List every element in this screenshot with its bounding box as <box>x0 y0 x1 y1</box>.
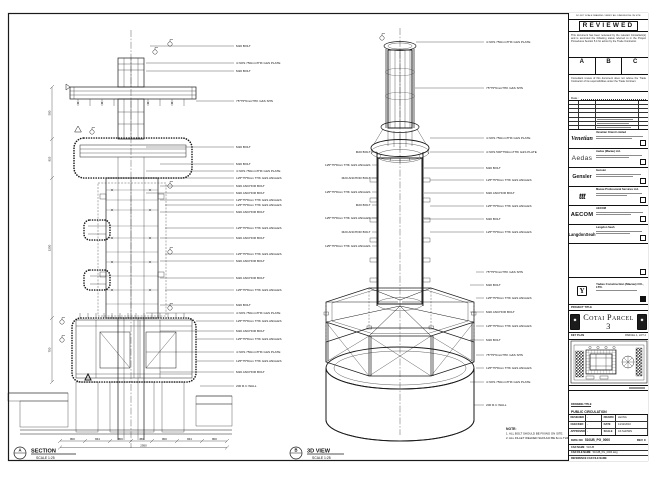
callout-label: M20 BOLT <box>236 44 251 48</box>
approved-label: APPROVED <box>569 429 586 436</box>
approved-value: - <box>586 429 603 436</box>
dim-label: 800 <box>162 437 167 441</box>
callout-label: 4 NOS 750mmTHK G&S PLATE <box>236 311 280 315</box>
section-marker: A <box>18 448 21 453</box>
callout-label: 4 NOS 500*750mmTHK G&S PLATE <box>486 150 537 154</box>
drawing-title-block: DRAWING TITLE PUBLIC CIRCULATION FOUNTAI… <box>569 391 648 415</box>
callout-label: 125*75*8mm THK G&S ANGLES <box>486 324 532 328</box>
key-plan-header: KEY PLAN PARCEL 1, LOT 2 <box>569 333 648 340</box>
company-row-aecom: AECOM AECOM <box>569 206 648 225</box>
title-block: DO NOT SCALE DRAWING. VERIFY ALL DIMENSI… <box>568 13 648 461</box>
callout-label: 4 NOS 750mmTHK G&S PLATE <box>486 380 530 384</box>
dim-label: 800 <box>212 437 217 441</box>
callout-label: 75*75*6mmTHK G&S SHS <box>486 353 523 357</box>
banner-ornament-left-icon <box>570 314 580 330</box>
parcel-tag <box>629 387 645 389</box>
checked-label: CHECKED <box>569 422 586 429</box>
reviewed-stamp-title: REVIEWED <box>579 21 639 31</box>
iso-callouts-right: 4 NOS 750mmTHK G&S PLATE 75*75*6mmTHK G&… <box>486 40 537 407</box>
notes-title: NOTE: <box>506 427 517 431</box>
company-row-venetian: Venetian Venetian Orient Limited <box>569 130 648 149</box>
company-checkbox[interactable] <box>640 269 646 275</box>
banner-ornament-right-icon <box>637 314 647 330</box>
callout-label: 125*75*8mm THK G&S ANGLES <box>236 359 282 363</box>
reviewed-paragraph-1: This document has been reviewed by the r… <box>569 32 648 58</box>
callout-label: M20 ANCHOR BOLT <box>236 276 265 280</box>
ref-cad-file-label: REFERENCE CAD FILE NAME <box>571 457 607 460</box>
scale-value: AS SHOWN <box>616 429 648 436</box>
callout-label: 125*75*8mm THK G&S ANGLES <box>486 204 532 208</box>
title-block-top-strip: DO NOT SCALE DRAWING. VERIFY ALL DIMENSI… <box>569 13 648 20</box>
company-row-aedas: Aedas Aedas (Macau) Ltd. <box>569 149 648 168</box>
grade-b-cell[interactable]: B <box>596 58 623 74</box>
callout-label: 4 NOS 750mmTHK G&S PLATE <box>486 136 530 140</box>
yadao-logo: Y <box>577 286 587 296</box>
cad-name-value: 510UB <box>586 446 594 449</box>
sheet-frame <box>9 14 648 461</box>
section-leaders <box>146 46 234 386</box>
callout-label: 125*75*8mm THK G&S ANGLES <box>325 244 371 248</box>
callout-label: 125*75*8mm THK G&S ANGLES <box>236 226 282 230</box>
callout-label: 125*75*8mm THK G&S ANGLES <box>236 337 282 341</box>
company-name: Macau Professional Services Ltd. <box>596 189 647 192</box>
venetian-logo: Venetian <box>569 130 595 148</box>
callout-label: 75*75*6mmTHK G&S SHS <box>236 99 273 103</box>
callout-label: 75*75*6mmTHK G&S SHS <box>486 86 523 90</box>
iso-left-leaders <box>372 152 377 246</box>
callout-label: 75*75*6mmTHK G&S SHS <box>486 270 523 274</box>
dim-label-v: 750 <box>48 347 52 352</box>
date-fill-line[interactable] <box>581 95 646 100</box>
dim-total: 2950 <box>140 443 147 447</box>
callout-label: M20 ANCHOR BOLT <box>236 236 265 240</box>
callout-label: 125*75*8mm THK G&S ANGLES <box>486 178 532 182</box>
callout-label: 125*75*8mm THK G&S ANGLES <box>325 190 371 194</box>
designed-value: - <box>586 415 603 422</box>
drawing-title-label: DRAWING TITLE <box>571 403 591 407</box>
iso-scale: SCALE 1:25 <box>312 456 331 460</box>
callout-label: M20 ANCHOR BOLT <box>486 191 515 195</box>
reviewed-date-row: Date : <box>569 92 648 101</box>
section-scale: SCALE 1:25 <box>36 456 55 460</box>
company-name: Aedas (Macau) Ltd. <box>596 151 647 154</box>
callout-label: M20 ANCHOR BOLT <box>342 176 371 180</box>
empty-approval-box <box>569 244 648 278</box>
iso-title: B 3D VIEW SCALE 1:25 <box>290 447 344 460</box>
dwg-no-row: DWG NO 510UB_PG_0000 REV C <box>569 436 648 445</box>
callout-label: 125*75*8mm THK G&S ANGLES <box>486 230 532 234</box>
callout-label: 200 R.C WALL <box>486 403 507 407</box>
drawn-label: DRAWN <box>602 415 616 422</box>
project-title: Cotai Parcel 3 <box>580 313 637 331</box>
dim-label: 450 <box>139 437 144 441</box>
company-name: Gensler <box>596 170 647 173</box>
callout-label: 4 NOS 750mmTHK G&S PLATE <box>486 40 530 44</box>
project-title-banner: Cotai Parcel 3 <box>569 311 648 333</box>
notes-block: NOTE: 1. ALL BOLT SHOULD BE FIXING ON SI… <box>506 427 570 440</box>
revision-row <box>569 126 648 129</box>
callout-label: M20 BOLT <box>486 217 501 221</box>
callout-label: 125*75*8mm THK G&S ANGLES <box>325 216 371 220</box>
callout-label: M20 ANCHOR BOLT <box>236 210 265 214</box>
contractor-name: Yadao Construction (Macau) CO., LTD. <box>596 283 647 290</box>
callout-label: M20 BOLT <box>356 203 371 207</box>
ref-cad-file-row: REFERENCE CAD FILE NAME <box>569 456 648 461</box>
callout-label: M20 ANCHOR BOLT <box>236 329 265 333</box>
aedas-logo: Aedas <box>569 149 595 167</box>
dim-label-v: 825 <box>48 156 52 161</box>
callout-label: M20 ANCHOR BOLT <box>486 310 515 314</box>
key-plan-ref: PARCEL 1, LOT 2 <box>625 334 646 338</box>
key-plan-label: KEY PLAN <box>571 334 584 338</box>
grade-c-cell[interactable]: C <box>622 58 648 74</box>
aecom-logo: AECOM <box>569 206 595 224</box>
iso-marker: B <box>294 448 297 453</box>
callout-label: 125*75*8mm THK G&S ANGLES <box>236 176 282 180</box>
callout-label: M20 ANCHOR BOLT <box>236 184 265 188</box>
revision-table <box>569 101 648 130</box>
callout-label: 125*75*8mm THK G&S ANGLES <box>236 319 282 323</box>
dwg-no-label: DWG NO <box>571 438 583 442</box>
dwg-no-value: 510UB_PG_0000 <box>585 438 637 442</box>
company-row-gensler: Gensler Gensler <box>569 168 648 187</box>
cad-name-label: CAD NAME <box>571 446 584 449</box>
callout-label: 125*75*8mm THK G&S ANGLES <box>486 296 532 300</box>
drawn-value: LEUNG <box>616 415 648 422</box>
callout-label: M20 BOLT <box>486 166 501 170</box>
callout-label: M20 BOLT <box>486 283 501 287</box>
dim-label-v: 2250 <box>48 244 52 251</box>
contractor-row: Y Yadao Construction (Macau) CO., LTD. <box>569 278 648 305</box>
callout-label: M20 ANCHOR BOLT <box>236 370 265 374</box>
callout-label: 200 R.C WALL <box>236 384 257 388</box>
drawing-area: 800 844 800 450 800 844 800 2950 500 825… <box>0 0 650 488</box>
section-title: A SECTION SCALE 1:25 <box>14 447 76 460</box>
callout-label: 125*75*8mm THK G&S ANGLES <box>236 203 282 207</box>
mps-logo: ttt <box>569 187 595 205</box>
dim-label: 844 <box>187 437 192 441</box>
company-row-mps: ttt Macau Professional Services Ltd. <box>569 187 648 206</box>
dim-label: 800 <box>70 437 75 441</box>
callout-label: M20 ANCHOR BOLT <box>342 230 371 234</box>
section-view: 800 844 800 450 800 844 800 2950 500 825… <box>8 30 282 460</box>
iso-view: 4 NOS 750mmTHK G&S PLATE 75*75*6mmTHK G&… <box>290 28 570 460</box>
scale-label: SCALE <box>602 429 616 436</box>
callout-label: M20 BOLT <box>486 338 501 342</box>
cad-file-value: 510UB_PG_0000.dwg <box>593 451 618 454</box>
date-label: Date : <box>571 96 579 100</box>
callout-label: 125*75*8mm THK G&S ANGLES <box>236 252 282 256</box>
reviewed-stamp: REVIEWED <box>569 20 648 32</box>
grade-a-cell[interactable]: A <box>569 58 596 74</box>
gensler-logo: Gensler <box>569 168 595 186</box>
callout-label: M20 BOLT <box>356 150 371 154</box>
note-item: 2. ALL FILLET WELDED SHOULD BE 6mm THK. <box>506 436 570 440</box>
company-name: Langdon Seah <box>596 227 647 230</box>
company-checkbox[interactable] <box>640 159 646 165</box>
dwg-rev-value: REV C <box>637 438 646 442</box>
callout-label: 125*75*8mm THK G&S ANGLES <box>325 163 371 167</box>
designed-label: DESIGNED <box>569 415 586 422</box>
contractor-checkbox[interactable] <box>640 296 646 302</box>
callout-label: M20 ANCHOR BOLT <box>236 191 265 195</box>
callout-label: 125*75*8mm THK G&S ANGLES <box>486 366 532 370</box>
reviewed-paragraph-2: Consultant review of this document does … <box>569 75 648 92</box>
callout-label: 4 NOS 750mmTHK G&S PLATE <box>236 169 280 173</box>
company-name: Venetian Orient Limited <box>596 132 647 135</box>
company-row-langdon: LangdonSeah Langdon Seah <box>569 225 648 244</box>
callout-label: 4 NOS 750mmTHK G&S PLATE <box>236 61 280 65</box>
section-callouts: M20 BOLT 4 NOS 750mmTHK G&S PLATE M20 BO… <box>236 44 282 388</box>
checked-value: - <box>586 422 603 429</box>
callout-label: M20 BOLT <box>236 303 251 307</box>
drawing-sheet: 800 844 800 450 800 844 800 2950 500 825… <box>0 0 650 488</box>
company-checkbox[interactable] <box>640 197 646 203</box>
callout-label: M20 BOLT <box>236 145 251 149</box>
dim-label: 800 <box>118 437 123 441</box>
note-item: 1. ALL BOLT SHOULD BE FIXING ON SITE. <box>506 432 563 436</box>
review-status-grades: A B C <box>569 58 648 75</box>
date-value: 14/12/2010 <box>616 422 648 429</box>
signoff-fields: DESIGNED - DRAWN LEUNG CHECKED - DATE 14… <box>569 415 648 436</box>
key-plan-map <box>569 340 648 386</box>
company-checkbox[interactable] <box>640 178 646 184</box>
langdon-seah-logo: LangdonSeah <box>569 225 595 243</box>
callout-label: M20 BOLT <box>236 162 251 166</box>
date-field-label: DATE <box>602 422 616 429</box>
cad-file-label: CAD FILE NAME <box>571 451 591 454</box>
callout-label: M20 BOLT <box>236 69 251 73</box>
company-checkbox[interactable] <box>640 140 646 146</box>
dim-label: 844 <box>95 437 100 441</box>
company-name: AECOM <box>596 208 647 211</box>
callout-label: 125*75*8mm THK G&S ANGLES <box>236 198 282 202</box>
company-checkbox[interactable] <box>640 235 646 241</box>
callout-label: 125*75*8mm THK G&S ANGLES <box>236 288 282 292</box>
callout-label: 4 NOS 750mmTHK G&S PLATE <box>236 350 280 354</box>
company-checkbox[interactable] <box>640 216 646 222</box>
dim-label-v: 500 <box>48 110 52 115</box>
dwg-number-block: DWG NO 510UB_PG_0000 REV C CAD NAME 510U… <box>569 436 648 461</box>
iso-callouts-left: M20 BOLT 125*75*8mm THK G&S ANGLES M20 A… <box>325 150 371 248</box>
callout-label: M20 ANCHOR BOLT <box>236 259 265 263</box>
